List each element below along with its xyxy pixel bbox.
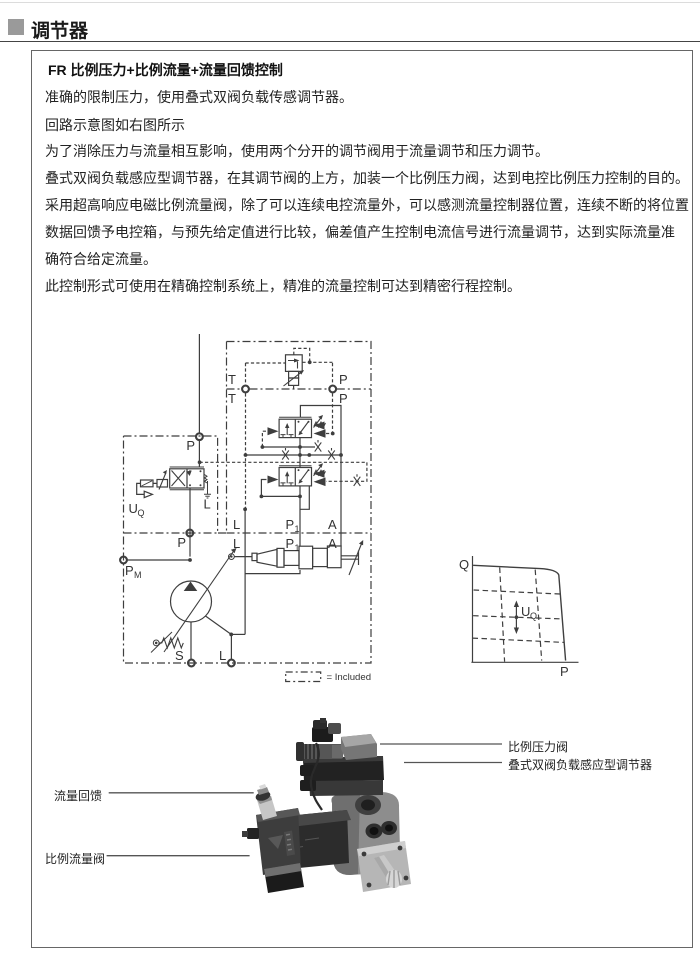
svg-text:P: P	[339, 372, 348, 387]
svg-text:A: A	[328, 536, 337, 551]
svg-text:Q: Q	[530, 611, 537, 621]
svg-text:1: 1	[295, 543, 300, 553]
svg-text:L: L	[233, 517, 240, 532]
svg-text:U: U	[521, 604, 530, 619]
svg-text:= Included: = Included	[327, 672, 372, 683]
svg-text:T: T	[228, 391, 236, 406]
svg-text:P: P	[286, 536, 295, 551]
svg-text:A: A	[328, 517, 337, 532]
svg-text:L: L	[233, 536, 240, 551]
svg-text:P: P	[177, 535, 186, 550]
svg-text:P: P	[339, 391, 348, 406]
svg-text:P: P	[125, 563, 134, 578]
svg-text:P: P	[286, 517, 295, 532]
svg-text:Q: Q	[459, 557, 469, 572]
svg-text:M: M	[134, 570, 142, 580]
svg-text:T: T	[228, 372, 236, 387]
svg-text:U: U	[129, 501, 138, 516]
svg-text:P: P	[186, 438, 195, 453]
svg-text:P: P	[560, 664, 569, 679]
svg-text:L: L	[204, 497, 211, 512]
svg-text:S: S	[175, 648, 184, 663]
svg-text:1: 1	[295, 524, 300, 534]
svg-text:L: L	[219, 648, 226, 663]
svg-text:Q: Q	[138, 508, 145, 518]
